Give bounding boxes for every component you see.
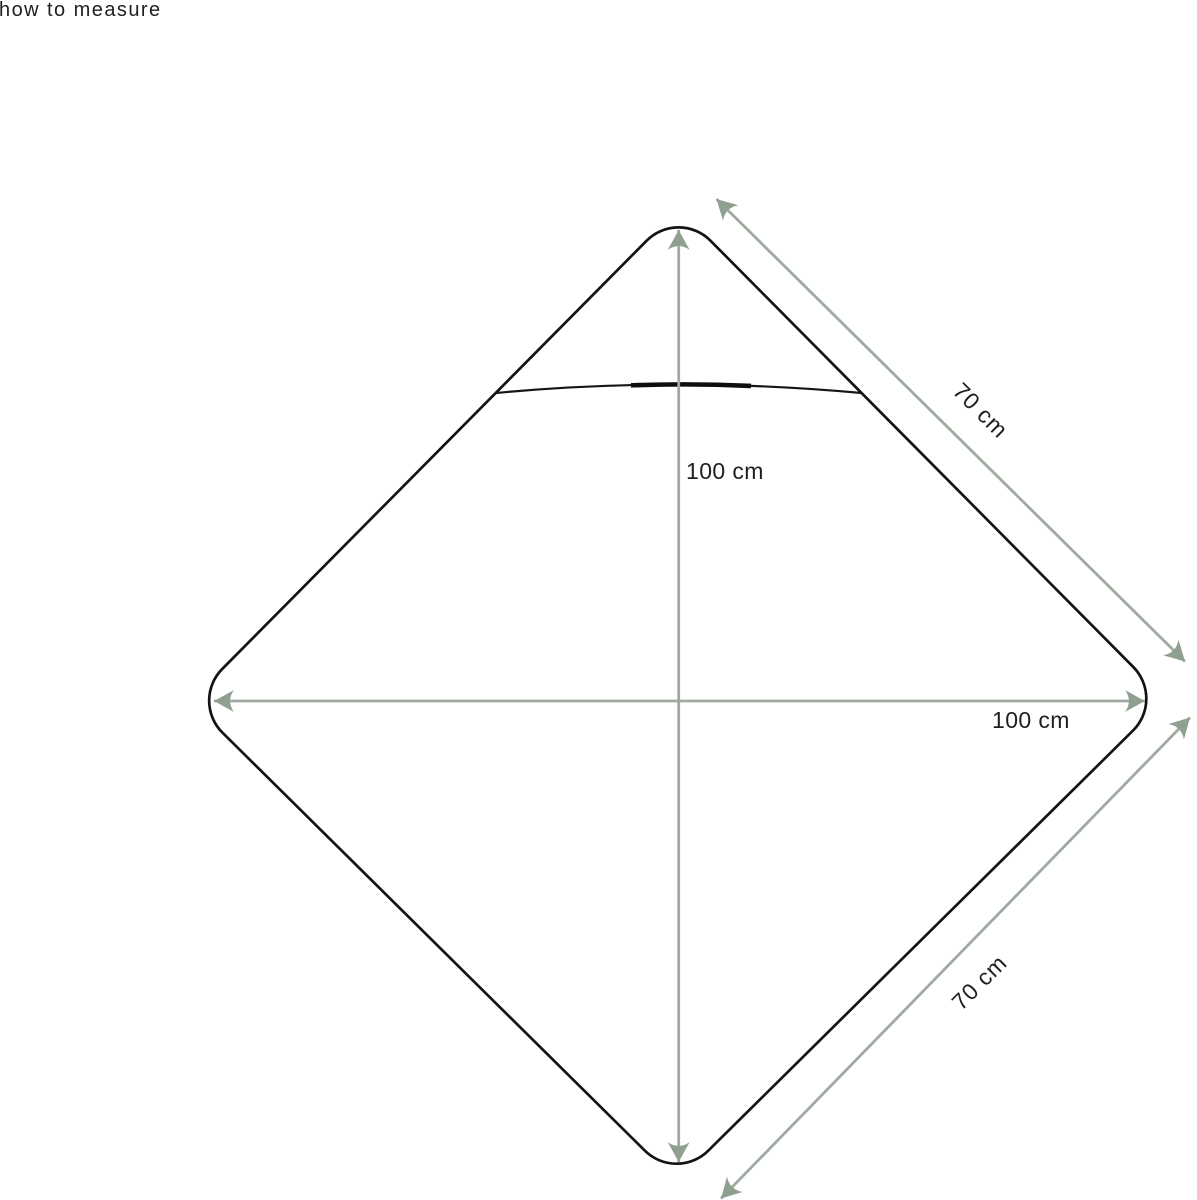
svg-text:how to measure: how to measure bbox=[0, 0, 162, 21]
svg-text:100 cm: 100 cm bbox=[992, 707, 1070, 733]
svg-text:100 cm: 100 cm bbox=[686, 458, 764, 484]
